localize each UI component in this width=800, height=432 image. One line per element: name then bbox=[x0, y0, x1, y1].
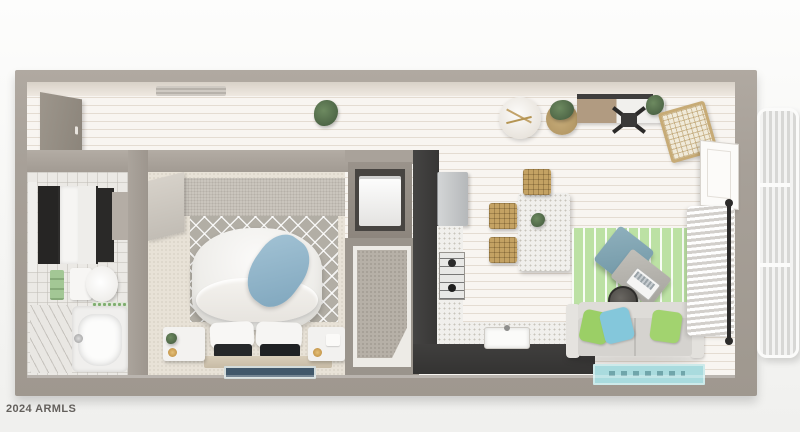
bathroom-tile-corner bbox=[30, 305, 72, 373]
burner bbox=[448, 259, 456, 267]
bedroom-accent-wall bbox=[160, 178, 345, 216]
screen-crossbar bbox=[760, 263, 790, 267]
bathroom-left-wall-face bbox=[28, 182, 37, 272]
sink-faucet bbox=[504, 325, 510, 331]
vanity-cabinet-dark-left bbox=[38, 186, 58, 264]
watermark-text: 2024 ARMLS bbox=[6, 403, 76, 415]
curtain-rod-finial bbox=[725, 199, 733, 207]
bathroom-wall-inset bbox=[112, 192, 128, 240]
basket-plant bbox=[546, 103, 578, 135]
refrigerator bbox=[437, 172, 468, 226]
vanity-mirror-door-right bbox=[78, 186, 98, 264]
farmhouse-sink bbox=[484, 327, 530, 349]
sofa-pillow-green-right bbox=[649, 309, 683, 344]
walk-in-closet-carpet bbox=[357, 250, 407, 358]
burner bbox=[448, 284, 456, 292]
green-towels bbox=[50, 270, 64, 300]
nightstand-right bbox=[308, 327, 345, 361]
vanity-mirror-door-left bbox=[58, 186, 80, 264]
chair-seat bbox=[621, 113, 637, 127]
wall-bathroom-bedroom bbox=[128, 150, 148, 375]
sofa-cushion-seam bbox=[634, 318, 636, 356]
kitchen-tall-cabinet-run bbox=[413, 150, 439, 355]
nightstand-book bbox=[326, 334, 340, 346]
floorplan-render: 2024 ARMLS bbox=[0, 0, 800, 432]
screen-crossbar bbox=[760, 183, 790, 187]
curtain-rod-finial bbox=[725, 337, 733, 345]
ceiling-vent bbox=[156, 86, 226, 96]
toilet-bowl bbox=[86, 266, 118, 302]
nightstand-clock-gold bbox=[168, 348, 177, 357]
bedroom-corner-door-panel bbox=[148, 172, 184, 241]
door-panel-line bbox=[707, 149, 731, 200]
door-handle bbox=[75, 126, 78, 135]
plant-foliage bbox=[550, 100, 574, 120]
bathtub-basin bbox=[78, 314, 122, 366]
bathroom-top-wall bbox=[27, 150, 360, 172]
bottom-wall-edge bbox=[27, 375, 735, 378]
bathtub-faucet bbox=[74, 334, 83, 343]
round-side-table bbox=[499, 97, 541, 139]
stool-left-upper bbox=[489, 203, 517, 229]
nightstand-clock-gold bbox=[313, 348, 322, 357]
washer-unit bbox=[359, 176, 401, 226]
white-door bbox=[700, 140, 739, 210]
terrazzo-dining-table bbox=[518, 193, 570, 271]
stool-top bbox=[523, 169, 551, 195]
nightstand-left bbox=[163, 327, 205, 361]
curtain-rod bbox=[727, 204, 731, 340]
nightstand-plant bbox=[166, 333, 177, 344]
gas-cooktop bbox=[439, 252, 465, 300]
security-screen-door bbox=[757, 108, 799, 358]
stool-left-lower bbox=[489, 237, 517, 263]
